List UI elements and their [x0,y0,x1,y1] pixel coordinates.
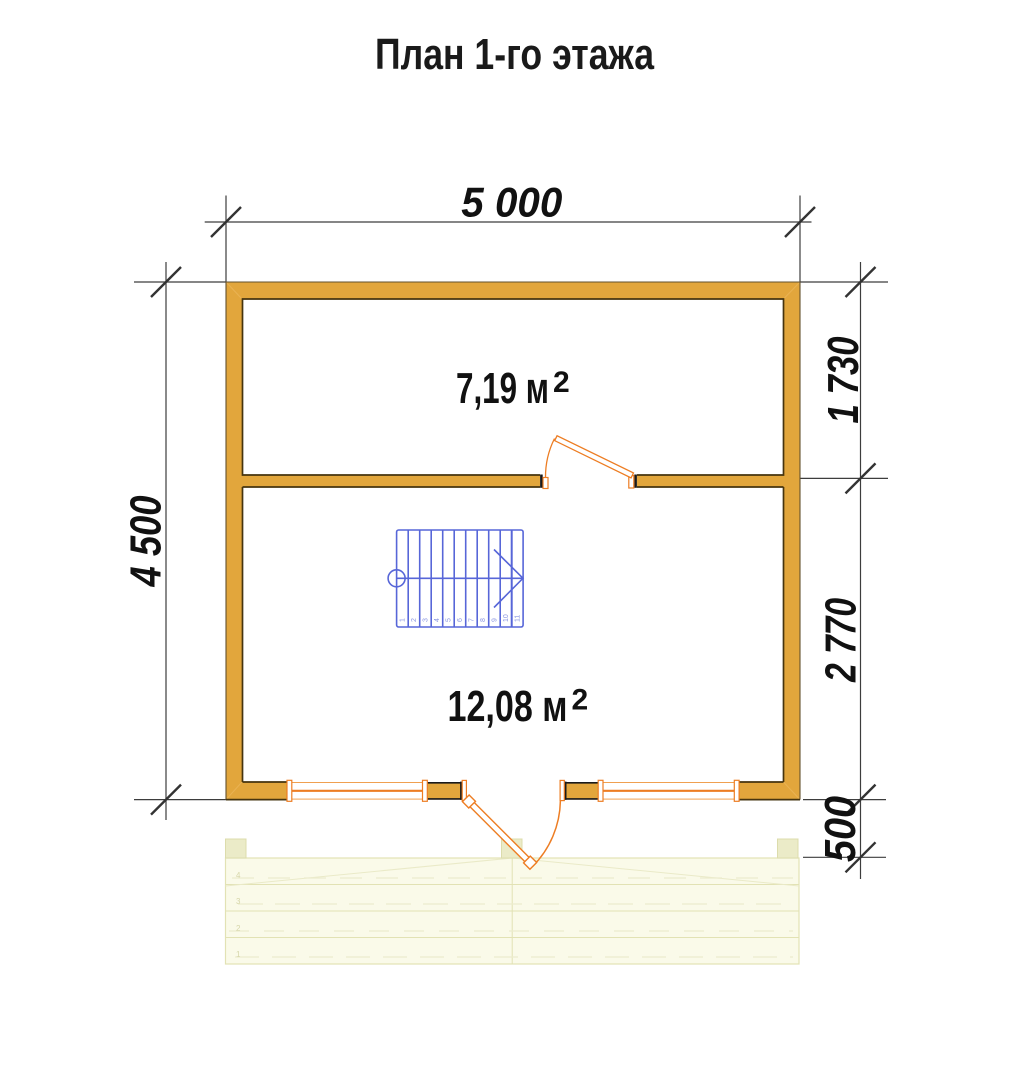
svg-text:7: 7 [469,618,476,622]
svg-text:1: 1 [236,950,241,959]
svg-text:3: 3 [423,618,430,622]
svg-text:1: 1 [400,618,407,622]
svg-text:8: 8 [480,618,487,622]
svg-text:6: 6 [457,618,464,622]
svg-text:11: 11 [515,615,522,622]
svg-text:4: 4 [434,618,441,622]
svg-text:500: 500 [816,796,865,862]
svg-text:5: 5 [446,618,453,622]
svg-text:10: 10 [503,614,510,622]
svg-text:7,19 м: 7,19 м [456,364,549,413]
svg-text:2: 2 [236,924,241,933]
svg-text:4: 4 [236,871,241,880]
svg-text:2 770: 2 770 [817,598,866,683]
svg-text:12,08 м: 12,08 м [448,682,568,731]
svg-text:2: 2 [411,618,418,622]
svg-text:План 1-го этажа: План 1-го этажа [375,30,654,79]
svg-text:1 730: 1 730 [819,336,868,423]
svg-text:9: 9 [492,618,499,622]
svg-text:2: 2 [553,366,570,399]
svg-text:5 000: 5 000 [461,179,562,226]
svg-text:4 500: 4 500 [122,495,171,587]
svg-text:2: 2 [572,684,589,717]
svg-text:3: 3 [236,897,241,906]
